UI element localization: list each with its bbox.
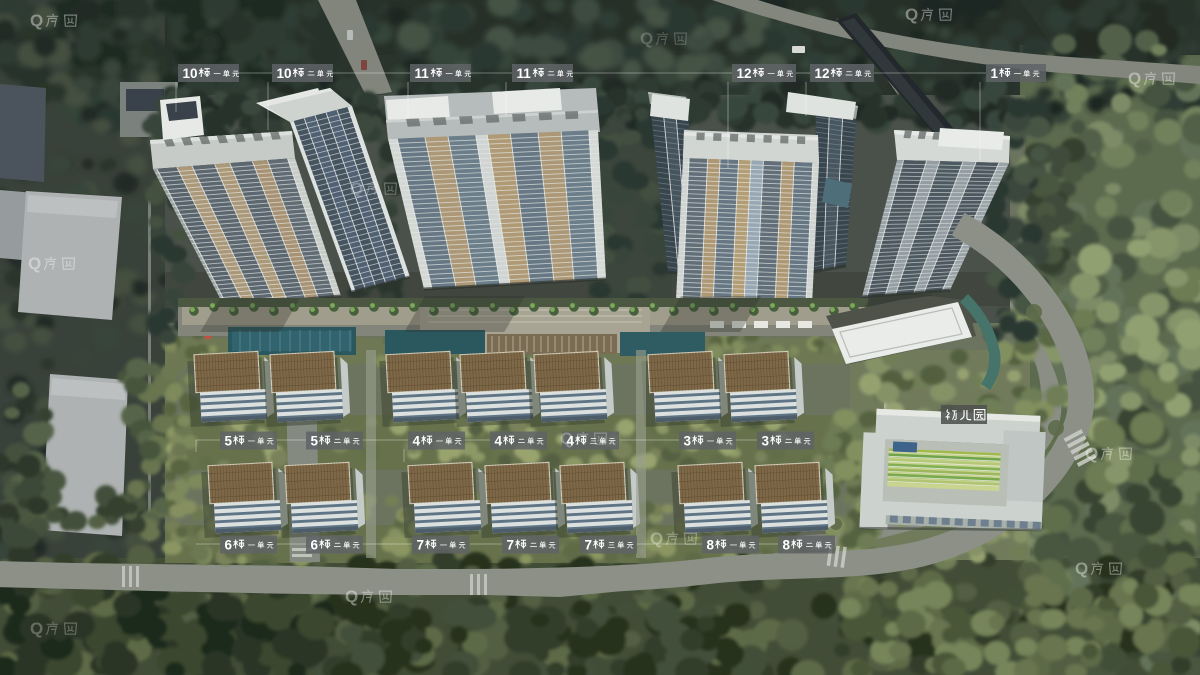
svg-text:Q: Q — [650, 529, 663, 548]
svg-text:Q: Q — [28, 254, 41, 273]
svg-text:12: 12 — [737, 66, 752, 81]
svg-text:10: 10 — [183, 66, 198, 81]
svg-text:3: 3 — [762, 434, 770, 449]
svg-text:Q: Q — [30, 11, 43, 30]
svg-text:4: 4 — [413, 434, 421, 449]
svg-text:Q: Q — [905, 5, 918, 24]
svg-text:7: 7 — [417, 538, 425, 553]
svg-text:Q: Q — [560, 429, 573, 448]
svg-text:Q: Q — [345, 587, 358, 606]
svg-text:12: 12 — [815, 66, 830, 81]
svg-text:8: 8 — [707, 538, 715, 553]
svg-text:6: 6 — [225, 538, 233, 553]
svg-text:Q: Q — [640, 29, 653, 48]
svg-text:8: 8 — [783, 538, 791, 553]
svg-text:1: 1 — [991, 66, 999, 81]
svg-text:Q: Q — [1128, 69, 1141, 88]
svg-text:5: 5 — [225, 434, 233, 449]
svg-text:Q: Q — [350, 179, 363, 198]
svg-text:Q: Q — [30, 619, 43, 638]
svg-text:11: 11 — [517, 66, 532, 81]
svg-text:3: 3 — [684, 434, 692, 449]
svg-text:4: 4 — [495, 434, 503, 449]
svg-text:6: 6 — [311, 538, 319, 553]
svg-text:7: 7 — [507, 538, 515, 553]
svg-text:11: 11 — [415, 66, 430, 81]
svg-text:Q: Q — [1085, 444, 1098, 463]
svg-text:7: 7 — [585, 538, 593, 553]
svg-text:5: 5 — [311, 434, 319, 449]
svg-text:Q: Q — [1075, 559, 1088, 578]
svg-text:10: 10 — [277, 66, 292, 81]
